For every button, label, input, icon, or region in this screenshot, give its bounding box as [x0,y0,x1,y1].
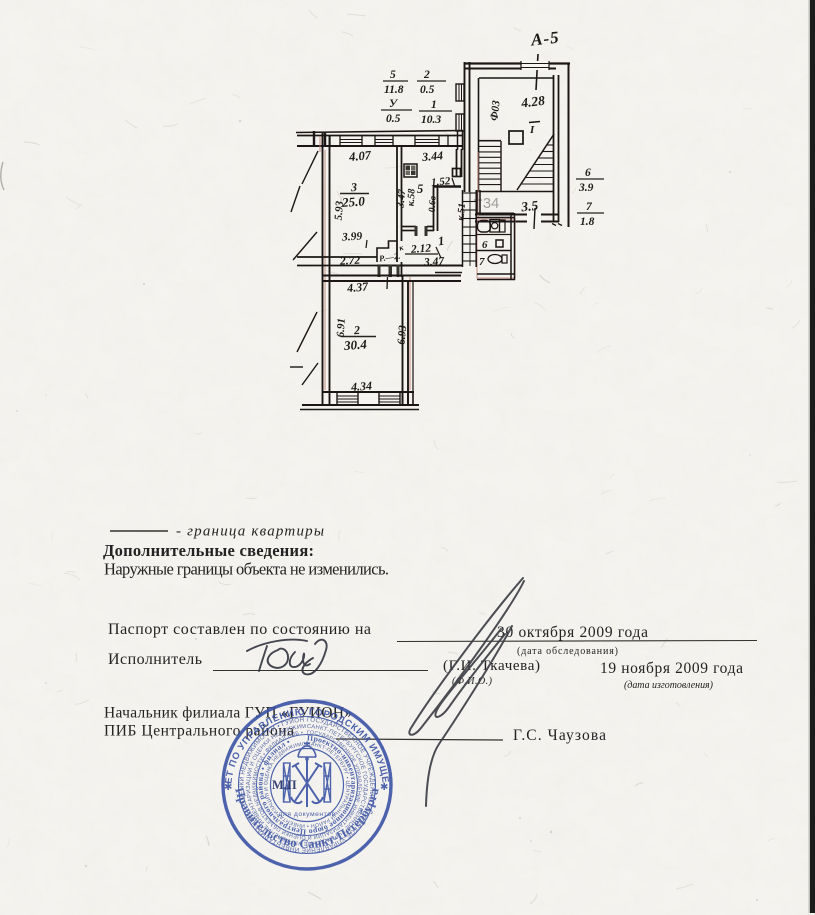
svg-text:3.44: 3.44 [421,148,444,164]
svg-text:19 ноября 2009 года: 19 ноября 2009 года [600,660,743,677]
svg-text:6: 6 [585,167,591,179]
svg-text:Дополнительные сведения:: Дополнительные сведения: [103,541,314,560]
svg-text:- граница квартиры: - граница квартиры [176,524,324,540]
svg-text:Г.С. Чаузова: Г.С. Чаузова [513,727,606,744]
svg-text:5: 5 [417,182,423,196]
svg-text:0.5: 0.5 [420,84,435,96]
svg-text:1: 1 [431,99,437,111]
svg-text:11.8: 11.8 [384,84,404,96]
svg-text:4.07: 4.07 [348,148,373,164]
svg-text:I: I [529,124,535,136]
svg-text:5: 5 [390,69,396,81]
svg-text:✱: ✱ [224,782,232,793]
svg-text:4.37: 4.37 [346,279,370,295]
svg-text:Исполнитель: Исполнитель [108,651,202,668]
svg-text:(дата обследования): (дата обследования) [517,646,618,657]
svg-text:30 октября 2009 года: 30 октября 2009 года [497,624,648,641]
svg-text:0.5: 0.5 [386,113,401,125]
svg-text:✱: ✱ [380,782,388,793]
svg-text:6: 6 [482,239,488,251]
svg-text:2: 2 [423,69,430,81]
svg-text:Ф03: Ф03 [488,99,502,121]
svg-text:2: 2 [353,323,361,337]
svg-text:5.93: 5.93 [333,200,346,221]
svg-text:7: 7 [479,256,485,268]
svg-text:2.72: 2.72 [339,255,361,268]
svg-text:3.47: 3.47 [395,188,408,209]
svg-text:34: 34 [483,196,499,212]
svg-text:30.4: 30.4 [343,336,368,353]
svg-text:А-5: А-5 [529,28,560,50]
svg-text:3.99: 3.99 [341,231,363,244]
svg-text:1.8: 1.8 [580,216,595,228]
svg-text:Наружные границы объекта не из: Наружные границы объекта не изменились. [104,560,389,579]
svg-text:М.П: М.П [272,778,297,792]
svg-text:Паспорт составлен по состоянию: Паспорт составлен по состоянию на [108,621,371,638]
svg-text:6.91: 6.91 [335,318,348,338]
svg-text:3.5: 3.5 [520,198,540,215]
svg-text:10.3: 10.3 [421,114,441,126]
svg-text:3.9: 3.9 [578,182,594,194]
svg-text:для документов: для документов [278,811,335,818]
svg-text:4.28: 4.28 [519,93,546,111]
svg-text:3.47: 3.47 [423,255,446,269]
svg-text:(дата изготовления): (дата изготовления) [624,680,714,691]
svg-text:3: 3 [350,180,358,194]
